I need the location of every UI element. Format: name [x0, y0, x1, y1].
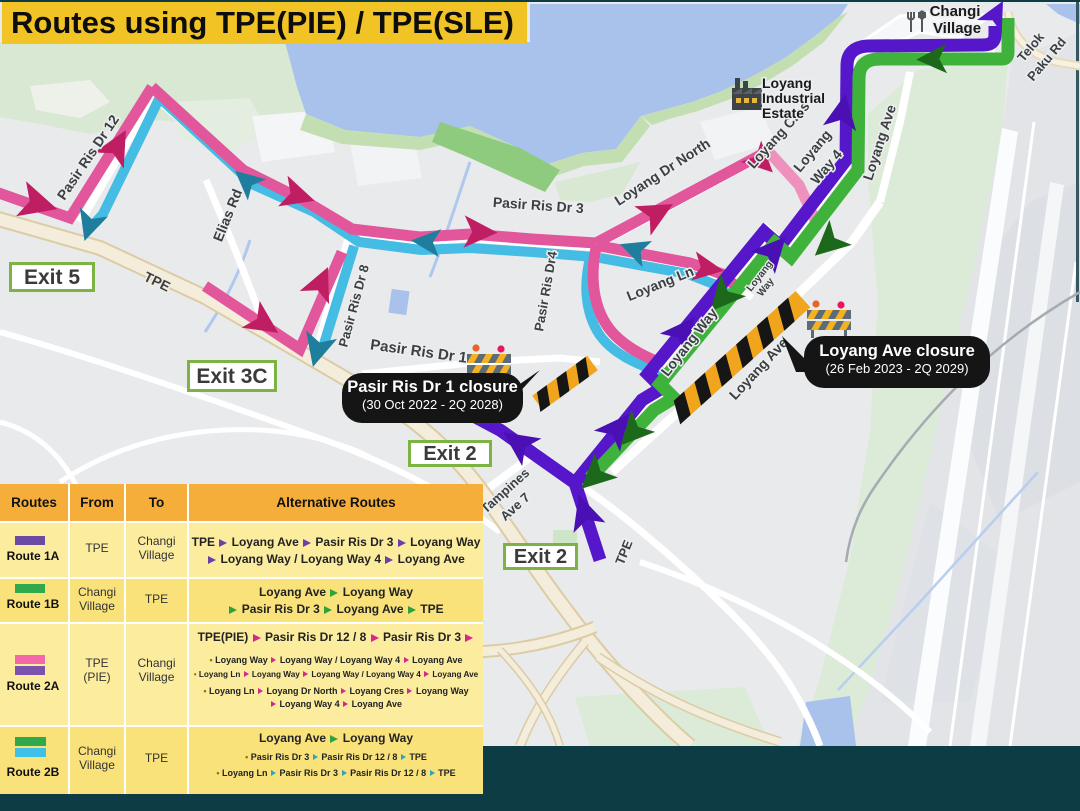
svg-text:Estate: Estate	[762, 105, 804, 121]
svg-text:Loyang: Loyang	[762, 75, 812, 91]
svg-text:Village: Village	[933, 20, 981, 37]
svg-text:Industrial: Industrial	[762, 90, 825, 106]
svg-text:Changi: Changi	[930, 3, 981, 20]
